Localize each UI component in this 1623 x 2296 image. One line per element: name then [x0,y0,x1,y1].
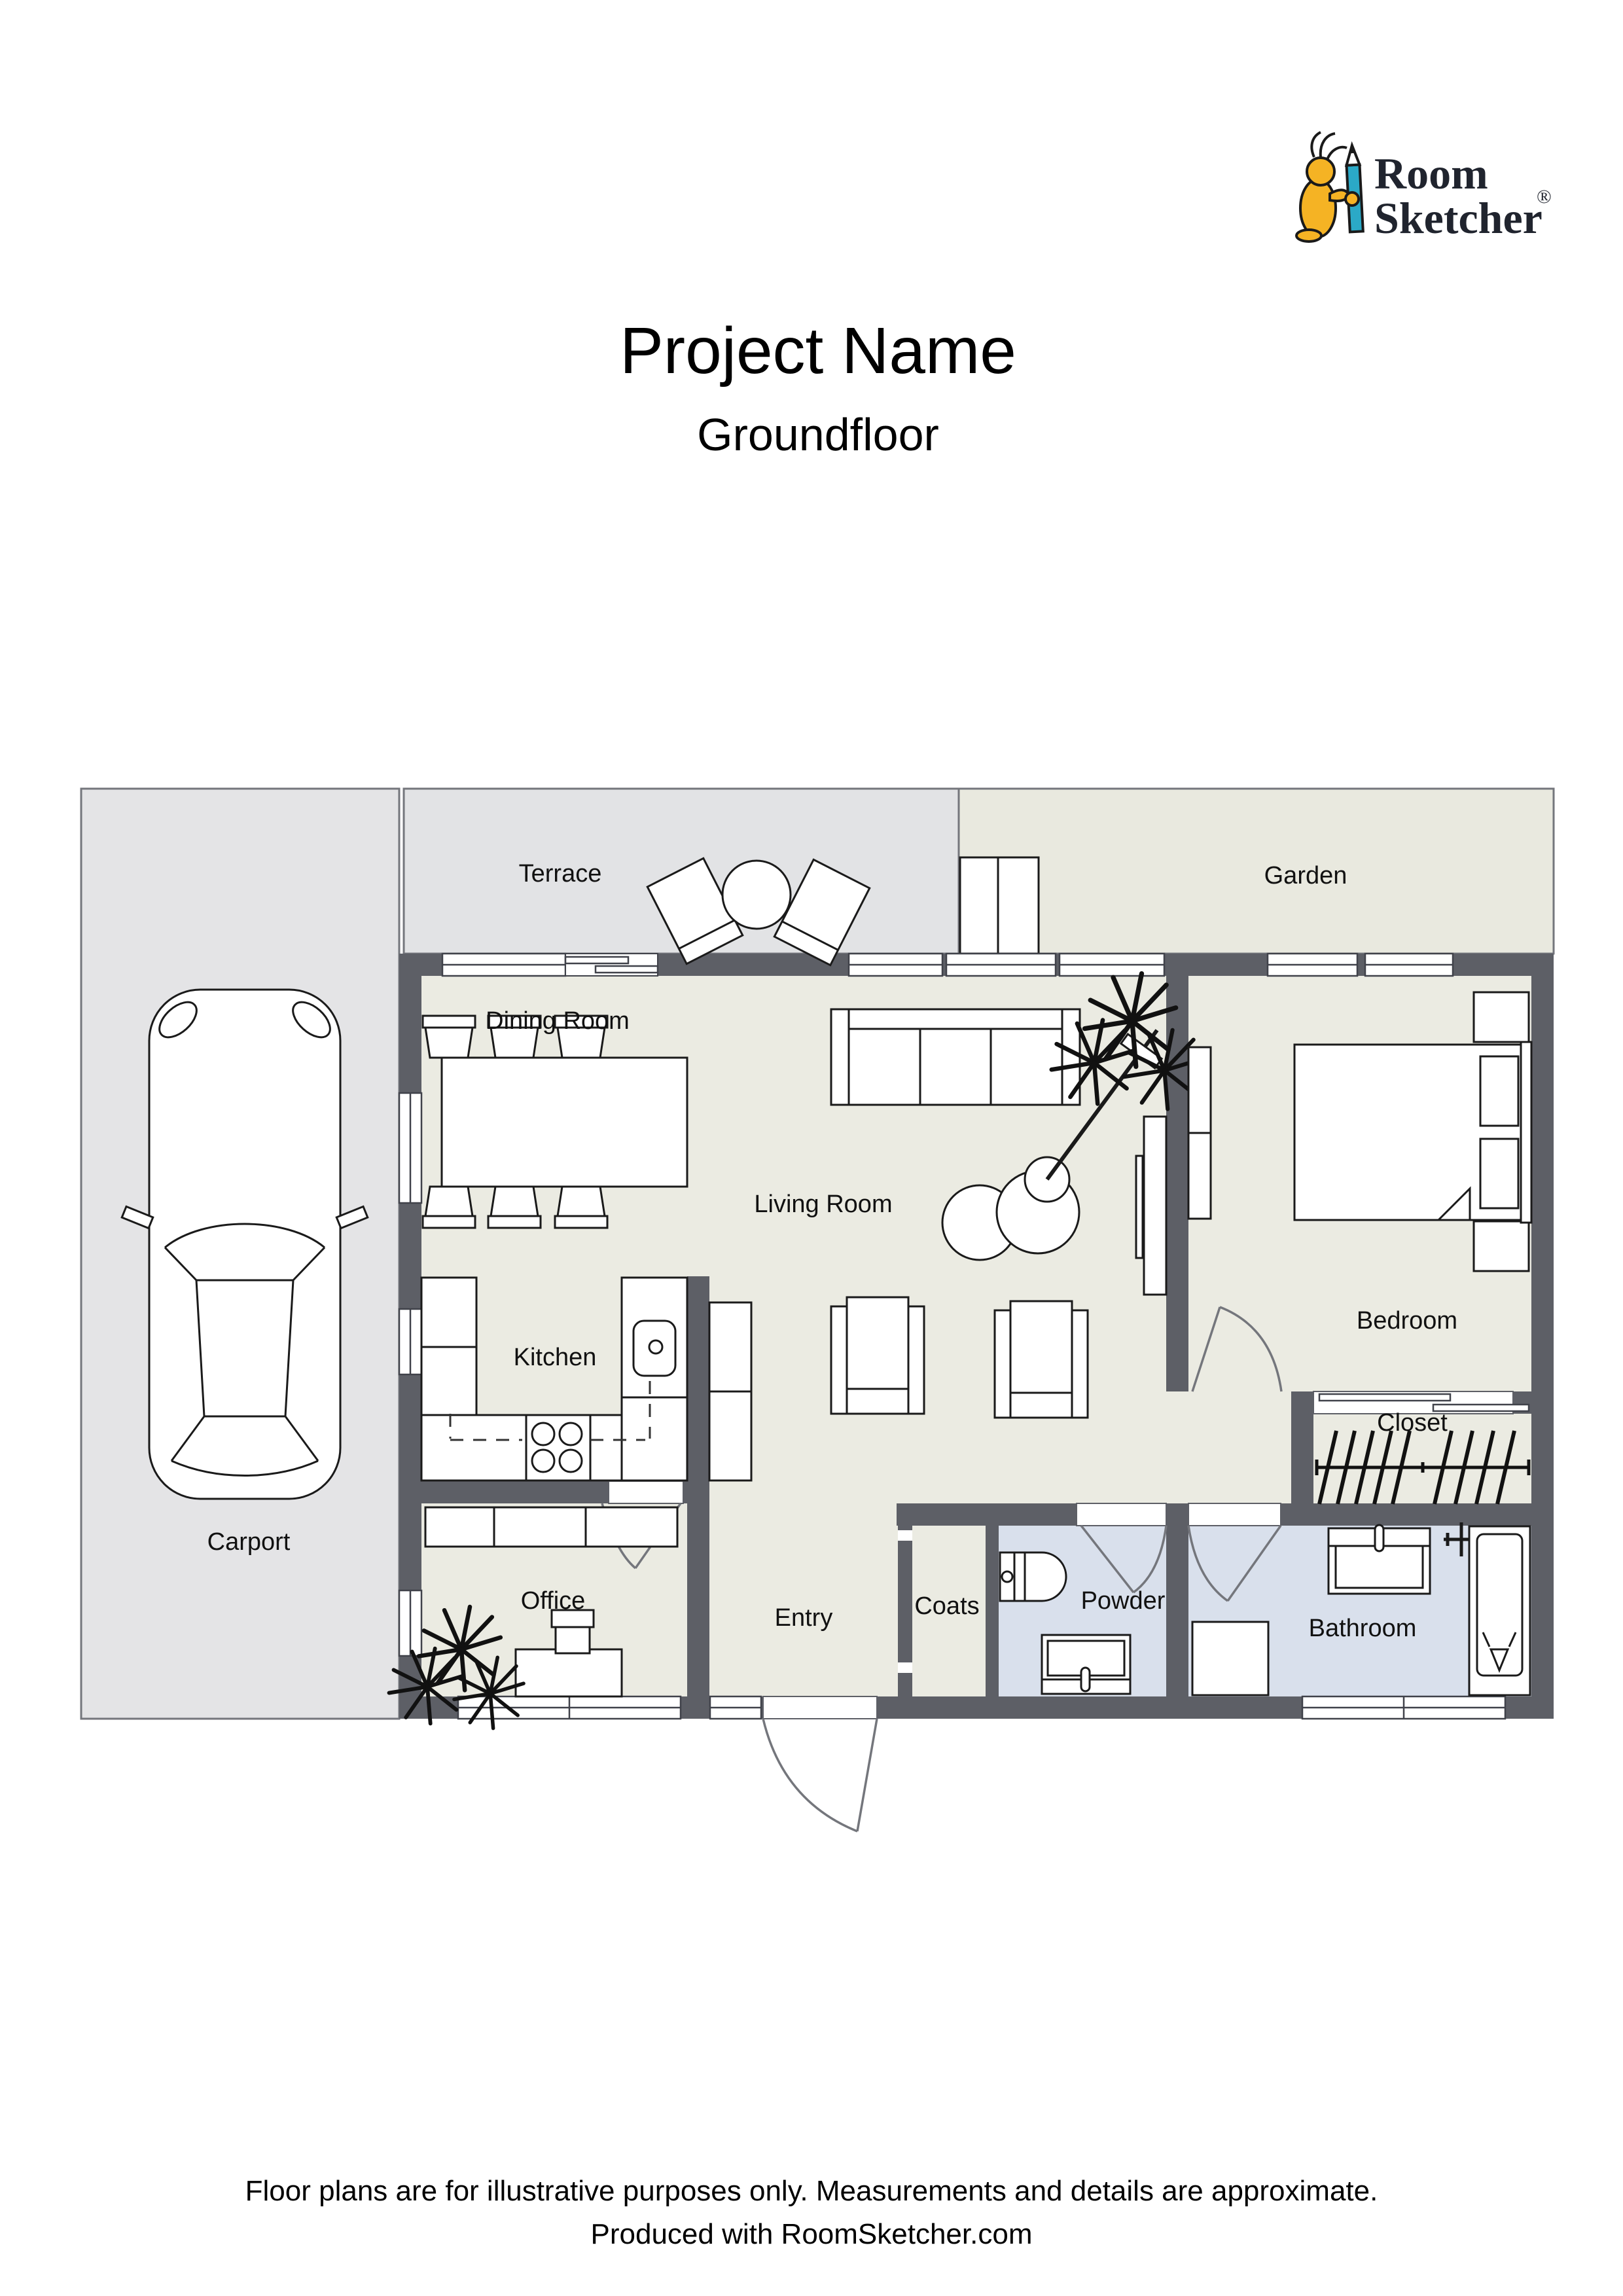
window-top-dining [442,954,565,976]
living-room-label: Living Room [754,1191,892,1218]
terrace-table [722,861,791,929]
logo-registered-mark: ® [1537,186,1552,207]
bedroom-label: Bedroom [1357,1307,1457,1335]
office-shelf [425,1507,677,1547]
faucet-icon [1081,1668,1090,1691]
front-door [763,1719,877,1831]
sofa [831,1009,1080,1105]
office-chair [552,1610,594,1653]
office-door-opening [609,1481,683,1503]
nightstand [1474,992,1529,1042]
entry-cabinet [709,1302,751,1480]
logo-word-1: Room [1374,149,1488,198]
bathtub [1469,1526,1530,1695]
nightstand [1474,1221,1529,1271]
washer [1192,1622,1268,1695]
page-subtitle: Groundfloor [697,409,939,460]
logo-word-2: Sketcher [1374,193,1543,243]
coats-label: Coats [914,1592,979,1620]
pencil-icon [1346,145,1363,232]
entry-label: Entry [775,1604,833,1632]
powder-door-opening [1077,1503,1166,1526]
powder-label: Powder [1081,1587,1166,1615]
floorplan-canvas: Terrace Garden Dining Room Living Room K… [0,0,1623,2296]
dining-table [442,1058,687,1187]
armchair [831,1297,924,1414]
dining-room-label: Dining Room [486,1007,630,1035]
garden-area [959,789,1554,954]
dining-chairs-bottom [423,1187,607,1228]
carport-label: Carport [207,1528,291,1556]
garden-label: Garden [1264,862,1347,889]
bathroom-door-opening [1188,1503,1281,1526]
roomsketcher-logo: Room Sketcher ® [1296,132,1552,243]
footer-credit: Produced with RoomSketcher.com [591,2218,1033,2250]
toilet [1000,1552,1066,1601]
kitchen-label: Kitchen [514,1344,597,1371]
dresser [1188,1047,1211,1219]
closet-label: Closet [1377,1409,1448,1437]
office-label: Office [521,1587,586,1615]
powder-sink [1042,1635,1130,1694]
roomsketcher-mascot-icon [1296,132,1363,242]
terrace-sliding-door [565,954,658,976]
bathroom-sink [1329,1525,1430,1594]
car [122,990,368,1499]
garden-storage [960,857,1039,954]
terrace-label: Terrace [519,860,602,888]
armchair [995,1301,1088,1418]
kitchen-faucet-icon [649,1340,662,1354]
floorplan-page: Terrace Garden Dining Room Living Room K… [0,0,1623,2296]
office-desk [516,1649,622,1696]
bathroom-label: Bathroom [1309,1615,1417,1642]
faucet-icon [1375,1525,1383,1551]
footer-disclaimer: Floor plans are for illustrative purpose… [245,2175,1378,2207]
page-title: Project Name [620,314,1016,387]
windows-top-living [849,954,1164,976]
double-bed [1294,1042,1531,1223]
front-door-opening [763,1696,877,1719]
